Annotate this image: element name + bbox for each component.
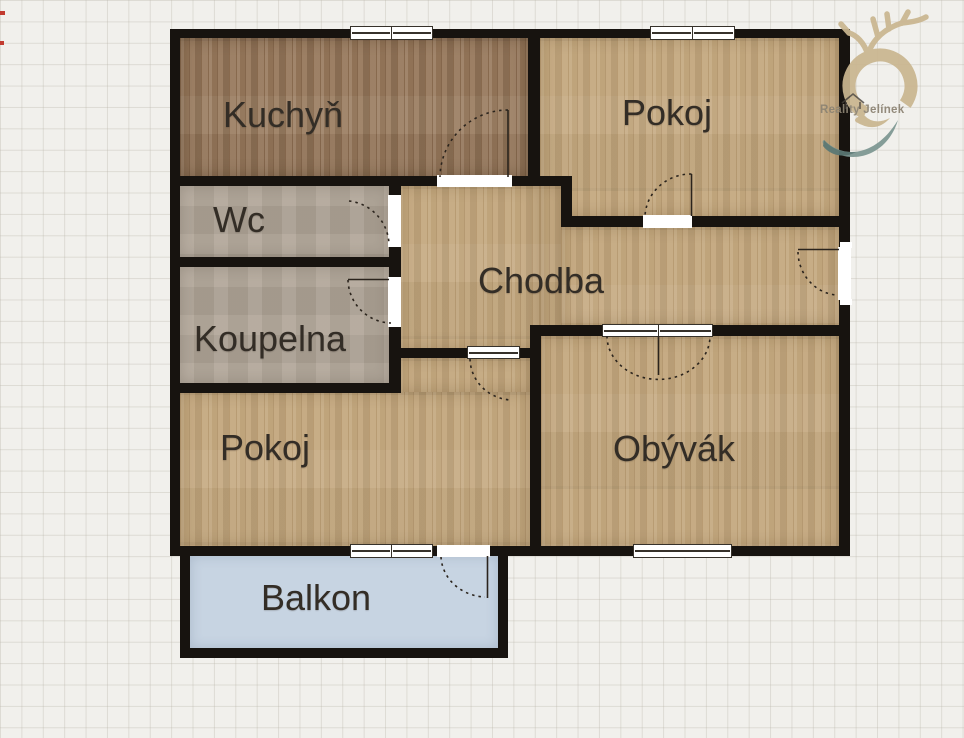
swoosh-icon — [823, 120, 898, 157]
door-opening-entrance — [838, 247, 851, 300]
door-opening-balkon — [437, 545, 490, 557]
window-pokoj-bottom-left — [350, 544, 392, 558]
obyvak-entry-leaf-right — [658, 324, 713, 337]
wall-pokoj-obyvak — [530, 325, 541, 556]
door-threshold-pokoj-bottom — [467, 346, 520, 359]
room-label-pokoj-bottom: Pokoj — [220, 427, 310, 469]
room-pokoj-bottom-floor-notch — [399, 358, 530, 392]
wall-outer-top — [170, 29, 850, 38]
room-wc-floor — [180, 186, 389, 257]
obyvak-entry-leaf-left — [602, 324, 659, 337]
room-label-wc: Wc — [213, 199, 265, 241]
window-pokoj-top-right — [692, 26, 735, 40]
wall-outer-left — [170, 29, 180, 556]
wall-balkon-right — [498, 556, 508, 658]
room-label-koupelna: Koupelna — [194, 318, 346, 360]
wall-outer-bottom — [170, 546, 850, 556]
entrance-frame-top — [840, 242, 852, 248]
window-obyvak — [633, 544, 732, 558]
room-label-obyvak: Obývák — [613, 428, 735, 470]
wall-wc-koupelna-divider — [170, 257, 401, 267]
door-opening-koupelna — [388, 277, 401, 327]
room-label-pokoj-top: Pokoj — [622, 92, 712, 134]
floorplan-canvas: Kuchyň Pokoj Wc Koupelna Chodba Pokoj Ob… — [0, 0, 964, 738]
door-opening-wc — [388, 195, 401, 247]
edge-tick-1 — [0, 11, 5, 15]
wall-kuchyn-pokoj — [528, 29, 540, 186]
wall-koupelna-bottom — [170, 383, 401, 393]
logo-text: Reality Jelínek — [820, 104, 960, 116]
window-kuchyn-left — [350, 26, 392, 40]
edge-tick-2 — [0, 41, 4, 45]
door-opening-kuchyn — [437, 175, 512, 187]
room-label-kuchyn: Kuchyň — [223, 94, 343, 136]
wall-balkon-left — [180, 556, 190, 658]
room-pokoj-bottom-floor — [180, 392, 530, 546]
wall-balkon-bottom — [180, 648, 508, 658]
window-pokoj-top-left — [650, 26, 693, 40]
logo-reality-jelinek: Reality Jelínek — [812, 8, 964, 164]
entrance-frame-bottom — [840, 299, 852, 305]
door-opening-pokoj-top — [643, 215, 692, 228]
room-label-chodba: Chodba — [478, 260, 604, 302]
wall-pokoj-top-bottom — [561, 216, 850, 227]
window-kuchyn-right — [391, 26, 433, 40]
room-label-balkon: Balkon — [261, 577, 371, 619]
window-pokoj-bottom-right — [391, 544, 433, 558]
